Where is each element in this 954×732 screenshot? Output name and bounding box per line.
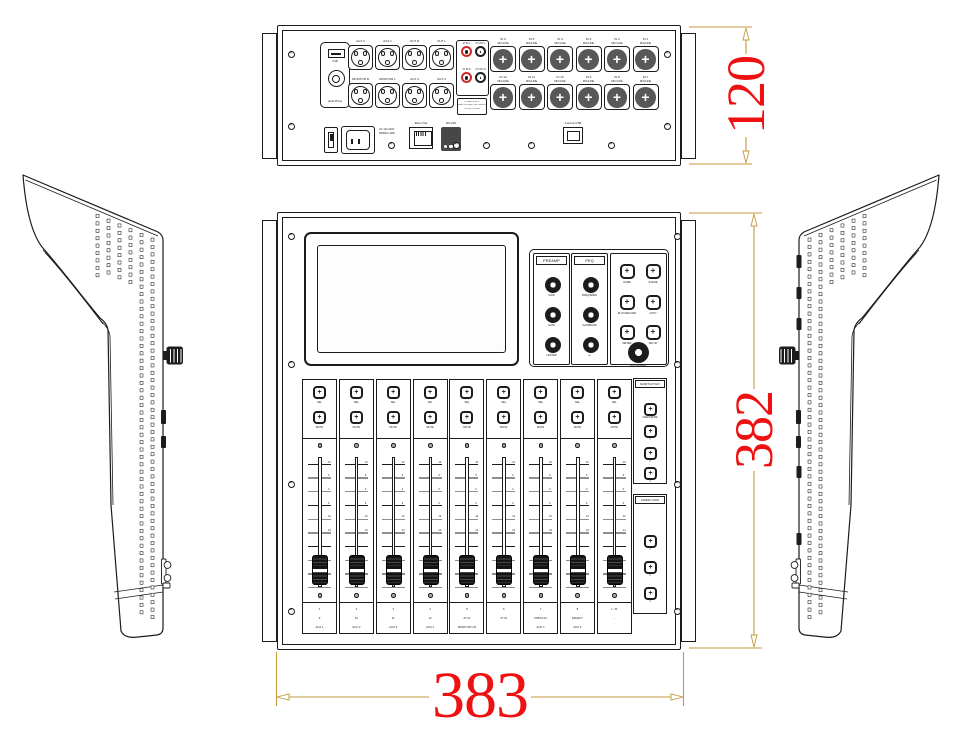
fader-scale-number: 6 [623, 503, 624, 506]
channel-strip: SELMUTE12606122452T INMONITOR L/R [449, 379, 484, 634]
peq-header: PEQ [574, 256, 605, 265]
select-button [424, 386, 437, 399]
select-button [460, 386, 473, 399]
mute-label: MUTE [414, 426, 447, 429]
xlr-combo-input: IN 8MIC/LINE [603, 76, 631, 110]
xlr-male-icon [375, 83, 400, 108]
screw-icon [608, 142, 615, 149]
select-button [497, 386, 510, 399]
side-view-right [779, 175, 939, 637]
shortcut-button-label: 1 [634, 439, 666, 442]
screw-icon [453, 142, 460, 149]
combo-jack-icon [547, 84, 573, 110]
channel-strip: SELMUTE12606122462T IN [486, 379, 521, 634]
fader-scale-number: 24 [365, 530, 368, 533]
xlr-pin [417, 89, 422, 94]
screw-icon [288, 361, 295, 368]
select-button [571, 386, 584, 399]
peq-knob-label: Q [572, 354, 607, 357]
mute-label: MUTE [487, 426, 520, 429]
tape-io-block: 2T IN L2T OUT L2T IN R2T OUT R [456, 40, 489, 96]
mute-led-icon [502, 593, 507, 598]
shortcut-button [644, 425, 657, 438]
xlr-pin [381, 89, 386, 94]
jack-label: OUT L [428, 40, 455, 44]
xlr-pin [439, 60, 444, 65]
xlr-combo-input: IN 5MIC/LINE [518, 38, 546, 72]
mute-button [350, 411, 363, 424]
fader-scale-number: 0 [475, 489, 476, 492]
channel-label-line: AUX 3 [377, 623, 410, 632]
combo-jack-icon [490, 84, 516, 110]
channel-strip: SELMUTE126061224210AUX 2 [339, 379, 374, 634]
rear-panel-view: USBHead PhoneAUX 2AUX 1OUT ROUT LMONITOR… [277, 25, 681, 166]
channel-label: 412AUX 4 [413, 602, 448, 634]
headphone-jack-icon [328, 70, 345, 87]
jack-sublabel: MIC/LINE [603, 42, 631, 45]
combo-jack-icon [576, 84, 602, 110]
fader-scale-number: 0 [586, 489, 587, 492]
mute-label: MUTE [450, 426, 483, 429]
fader-scale-number: 6 [328, 503, 329, 506]
channel-label-line: 9 [303, 614, 336, 623]
xlr-male-icon [429, 83, 454, 108]
xlr-pin [408, 51, 413, 56]
fader-cap [386, 555, 402, 585]
screw-icon [664, 51, 671, 58]
screw-icon [674, 233, 681, 240]
fader-scale-number: 12 [623, 462, 626, 465]
select-label: SEL [340, 401, 373, 404]
channel-label-line: AUX 1 [524, 623, 557, 632]
port-label: RS-232 [439, 122, 463, 126]
preamp-knob-label: GAIN [534, 294, 569, 297]
combo-jack-icon [633, 46, 659, 72]
shortcut-button-label: 3 [634, 481, 666, 484]
mute-label: MUTE [303, 426, 336, 429]
peq-knob-label: FREQ/BAND [572, 294, 607, 297]
control-usb-port: Control USB [556, 122, 590, 144]
rear-rack-ear-right [681, 33, 696, 159]
channel-label: L / R- [597, 602, 632, 634]
channel-strip: SELMUTE126061224L / R- [597, 379, 632, 634]
screw-icon [674, 481, 681, 488]
channel-label-line: 6 [487, 605, 520, 614]
fader-scale-number: 12 [512, 516, 515, 519]
fader-layer-button [644, 587, 657, 600]
xlr-combo-input: IN 4MIC/LINE [546, 38, 574, 72]
fader-scale-number: 24 [475, 530, 478, 533]
fader-scale-number: 24 [439, 530, 442, 533]
xlr-pin [363, 51, 368, 56]
select-button [534, 386, 547, 399]
mute-label: MUTE [340, 426, 373, 429]
fader-cap [533, 555, 549, 585]
signal-led-icon [318, 443, 323, 448]
fader-scale-number: 12 [586, 462, 589, 465]
fader-scale-number: 0 [623, 489, 624, 492]
xlr-combo-input: IN 10MIC/LINE [546, 76, 574, 110]
fader-scale-number: 12 [328, 516, 331, 519]
menu-button [646, 295, 661, 310]
strip-buttons: SELMUTE [377, 380, 410, 439]
xlr-pin [417, 51, 422, 56]
channel-label-line: 8 [561, 605, 594, 614]
select-button [350, 386, 363, 399]
xlr-pin [439, 98, 444, 103]
shortcut-button [644, 467, 657, 480]
select-button [313, 386, 326, 399]
xlr-pin [412, 98, 417, 103]
shortcut-button [644, 447, 657, 460]
screw-icon [674, 361, 681, 368]
preamp-knob-label: LIMITER [534, 354, 569, 357]
xlr-output: AUX 1 [374, 40, 401, 70]
fader-layer-section: FADER LAYER123 [633, 494, 667, 614]
xlr-combo-input: IN 12MIC/LINE [489, 76, 517, 110]
xlr-output: OUT L [428, 40, 455, 70]
channel-label: 8EFFECTAUX 2 [560, 602, 595, 634]
channel-label-line: - [598, 614, 631, 623]
mute-led-icon [391, 593, 396, 598]
menu-button [620, 264, 635, 279]
data-wheel-label: DATA WHEEL [618, 364, 658, 367]
fader-scale-number: 12 [439, 462, 442, 465]
fader-scale-number: 6 [549, 475, 550, 478]
xlr-output: MONITOR L [374, 78, 401, 108]
rca-connector-icon [461, 46, 472, 57]
jack-label: MONITOR R [347, 78, 374, 82]
fader-cap [349, 555, 365, 585]
preamp-knob-icon [545, 277, 561, 293]
jack-sublabel: MIC/LINE [518, 42, 546, 45]
fader-scale-number: 24 [586, 530, 589, 533]
menu-section: HOMESCENEPLAY/RECORDCOPYMETERSETUPDATA W… [610, 253, 667, 365]
xlr-male-icon [402, 45, 427, 70]
xlr-pin [390, 89, 395, 94]
fader-scale-number: 6 [512, 503, 513, 506]
jack-sublabel: MIC/LINE [489, 42, 517, 45]
front-panel-view: PREAMPGAINGATELIMITERPEQFREQ/BANDGAIN/BA… [277, 212, 681, 650]
dimension-width: 383 [432, 663, 528, 729]
side-view-left [23, 175, 183, 637]
xlr-output: OUT R [401, 40, 428, 70]
fader-scale-number: 12 [328, 462, 331, 465]
usb-b-icon [563, 127, 583, 144]
channel-label-line: 5 [450, 605, 483, 614]
channel-label: 62T IN [486, 602, 521, 634]
jack-label: AUX 4 [401, 78, 428, 82]
signal-led-icon [575, 443, 580, 448]
xlr-pin [358, 98, 363, 103]
mute-button [424, 411, 437, 424]
combo-jack-icon [490, 46, 516, 72]
channel-label-line: 4 [414, 605, 447, 614]
channel-strip: SELMUTE1260612247USB PLAYAUX 1 [523, 379, 558, 634]
peq-knob-icon [583, 337, 599, 353]
port-label: Control USB [556, 122, 590, 126]
fader-scale-number: 24 [549, 530, 552, 533]
xlr-pin [358, 60, 363, 65]
channel-label: 19AUX 1 [302, 602, 337, 634]
fader-cap [459, 555, 475, 585]
fader-scale-number: 0 [402, 489, 403, 492]
fader-scale-number: 0 [365, 489, 366, 492]
xlr-pin [354, 51, 359, 56]
jack-sublabel: MIC/LINE [632, 80, 660, 83]
fader-layer-button-label: 3 [634, 601, 666, 604]
signal-led-icon [539, 443, 544, 448]
rear-rack-ear-left [262, 33, 277, 159]
mute-led-icon [575, 593, 580, 598]
shortcut-key-header: SHORTCUT KEY [635, 380, 665, 388]
fader-cap [607, 555, 623, 585]
fader-layer-button-label: 2 [634, 575, 666, 578]
xlr-combo-input: IN 9MIC/LINE [575, 76, 603, 110]
combo-jack-icon [576, 46, 602, 72]
fader-cap [570, 555, 586, 585]
peq-knob-icon [583, 307, 599, 323]
peq-knob-label: GAIN/BAND [572, 324, 607, 327]
strip-buttons: SELMUTE [414, 380, 447, 439]
fader-cap [423, 555, 439, 585]
signal-led-icon [391, 443, 396, 448]
signal-led-icon [428, 443, 433, 448]
fader-scale-number: 12 [512, 462, 515, 465]
screw-icon [288, 51, 295, 58]
warning-line: DO NOT OPEN [458, 108, 486, 112]
channel-label-line: AUX 1 [303, 623, 336, 632]
xlr-pin [444, 89, 449, 94]
data-wheel-icon [628, 342, 649, 363]
channel-strip: SELMUTE126061224412AUX 4 [413, 379, 448, 634]
channel-strip: SELMUTE126061224311AUX 3 [376, 379, 411, 634]
channel-strip: SELMUTE12606122419AUX 1 [302, 379, 337, 634]
fader-scale-number: 12 [402, 516, 405, 519]
xlr-pin [385, 60, 390, 65]
xlr-combo-input: IN 3MIC/LINE [575, 38, 603, 72]
mute-button [534, 411, 547, 424]
xlr-combo-input: IN 1MIC/LINE [632, 38, 660, 72]
select-label: SEL [303, 401, 336, 404]
channel-label-line: 12 [414, 614, 447, 623]
combo-jack-icon [547, 46, 573, 72]
channel-label-line: 3 [377, 605, 410, 614]
fader-cap [312, 555, 328, 585]
fader-scale-number: 12 [549, 462, 552, 465]
strip-buttons: SELMUTE [487, 380, 520, 439]
usb-port-icon [328, 49, 345, 58]
signal-led-icon [612, 443, 617, 448]
xlr-output: AUX 4 [401, 78, 428, 108]
fader-scale-number: 0 [439, 489, 440, 492]
fader-scale-number: 12 [623, 516, 626, 519]
screw-icon [528, 142, 535, 149]
signal-led-icon [465, 443, 470, 448]
fader-scale-number: 6 [475, 503, 476, 506]
xlr-male-icon [375, 45, 400, 70]
fader-scale-number: 24 [512, 530, 515, 533]
select-label: SEL [598, 401, 631, 404]
xlr-pin [408, 89, 413, 94]
power-spec-line: 50/60Hz 40W [379, 132, 407, 136]
channel-label-line: AUX 2 [340, 623, 373, 632]
jack-sublabel: MIC/LINE [632, 42, 660, 45]
menu-button [646, 264, 661, 279]
xlr-combo-input: IN 7MIC/LINE [632, 76, 660, 110]
jack-label: AUX 3 [428, 78, 455, 82]
shortcut-button [644, 403, 657, 416]
xlr-pin [390, 51, 395, 56]
headphone-label: Head Phone [321, 100, 349, 103]
channel-label-line: EFFECT [561, 614, 594, 623]
fader-scale-number: 12 [475, 516, 478, 519]
screw-icon [674, 608, 681, 615]
screw-icon [288, 123, 295, 130]
jack-label: AUX 1 [374, 40, 401, 44]
fader-scale-number: 12 [549, 516, 552, 519]
xlr-pin [385, 98, 390, 103]
channel-label: 52T INMONITOR L/R [449, 602, 484, 634]
power-switch-icon [324, 127, 338, 153]
select-label: SEL [377, 401, 410, 404]
xlr-combo-input: IN 11MIC/LINE [518, 76, 546, 110]
fader-scale-number: 6 [512, 475, 513, 478]
xlr-combo-input: IN 2MIC/LINE [603, 38, 631, 72]
select-button [387, 386, 400, 399]
fader-scale-number: 6 [475, 475, 476, 478]
channel-label-line: 11 [377, 614, 410, 623]
fader-scale-number: 6 [586, 475, 587, 478]
fader-scale-number: 24 [402, 530, 405, 533]
jack-sublabel: MIC/LINE [575, 42, 603, 45]
touchscreen-bezel [304, 232, 519, 366]
fader-scale-number: 6 [549, 503, 550, 506]
select-label: SEL [450, 401, 483, 404]
screw-icon [288, 481, 295, 488]
mute-led-icon [539, 593, 544, 598]
usb-label: USB [321, 60, 349, 63]
fader-scale-number: 12 [439, 516, 442, 519]
mute-led-icon [354, 593, 359, 598]
mute-button [608, 411, 621, 424]
menu-button-label: SCENE [639, 281, 667, 284]
fader-scale-number: 12 [402, 462, 405, 465]
channel-label-line: USB PLAY [524, 614, 557, 623]
select-label: SEL [561, 401, 594, 404]
fader-scale-number: 6 [365, 503, 366, 506]
fader-scale-number: 0 [328, 489, 329, 492]
fader-scale-number: 12 [475, 462, 478, 465]
xlr-male-icon [402, 83, 427, 108]
fader-scale-number: 6 [328, 475, 329, 478]
jack-sublabel: MIC/LINE [518, 80, 546, 83]
power-spec: AC 110-240V50/60Hz 40W [379, 128, 407, 136]
screw-icon [288, 608, 295, 615]
channel-label-line: AUX 4 [414, 623, 447, 632]
dimension-front-height: 382 [727, 391, 781, 469]
combo-jack-icon [519, 46, 545, 72]
jack-sublabel: MIC/LINE [489, 80, 517, 83]
terminal-pin [444, 145, 447, 148]
peq-knob-icon [583, 277, 599, 293]
preamp-header: PREAMP [536, 256, 567, 265]
select-label: SEL [487, 401, 520, 404]
xlr-male-icon [348, 45, 373, 70]
signal-led-icon [354, 443, 359, 448]
fader-scale-number: 24 [623, 530, 626, 533]
xlr-pin [444, 51, 449, 56]
combo-jack-icon [633, 84, 659, 110]
fader-scale-number: 24 [328, 530, 331, 533]
strip-buttons: SELMUTE [340, 380, 373, 439]
shortcut-button-label: USER DEFINE [634, 417, 666, 420]
combo-jack-icon [519, 84, 545, 110]
fader-cap [496, 555, 512, 585]
fader-layer-button-label: 1 [634, 549, 666, 552]
xlr-output: AUX 2 [347, 40, 374, 70]
xlr-combo-input: IN 6MIC/LINE [489, 38, 517, 72]
screw-icon [664, 123, 671, 130]
xlr-output: MONITOR R [347, 78, 374, 108]
mute-label: MUTE [561, 426, 594, 429]
rca-connector-icon [461, 72, 472, 83]
jack-connector-icon [475, 46, 486, 57]
fader-scale-number: 0 [549, 489, 550, 492]
mute-button [571, 411, 584, 424]
jack-label: AUX 2 [347, 40, 374, 44]
xlr-pin [381, 51, 386, 56]
xlr-male-icon [429, 45, 454, 70]
fader-scale-number: 6 [402, 475, 403, 478]
menu-button-label: COPY [639, 312, 667, 315]
fader-scale-number: 12 [365, 516, 368, 519]
select-button [608, 386, 621, 399]
channel-label-line: 2 [340, 605, 373, 614]
strip-buttons: SELMUTE [450, 380, 483, 439]
fader-layer-button [644, 535, 657, 548]
channel-label-line: 7 [524, 605, 557, 614]
xlr-pin [435, 89, 440, 94]
fader-scale-number: 6 [439, 475, 440, 478]
mute-led-icon [612, 593, 617, 598]
fader-scale-number: 6 [365, 475, 366, 478]
xlr-pin [435, 51, 440, 56]
preamp-knob-label: GATE [534, 324, 569, 327]
tape-cell: 2T IN R [460, 69, 473, 83]
master-control-cluster: PREAMPGAINGATELIMITERPEQFREQ/BANDGAIN/BA… [529, 249, 669, 367]
channel-label-line: MONITOR L/R [450, 623, 483, 632]
mute-button [460, 411, 473, 424]
touchscreen [317, 245, 506, 353]
screw-icon [288, 233, 295, 240]
channel-label-line: 10 [340, 614, 373, 623]
screw-icon [483, 142, 490, 149]
usb-phone-plate: USBHead Phone [320, 42, 350, 108]
channel-strip: SELMUTE1260612248EFFECTAUX 2 [560, 379, 595, 634]
fader-scale-number: 6 [402, 503, 403, 506]
preamp-knob-icon [545, 307, 561, 323]
channel-label-line: AUX 2 [561, 623, 594, 632]
channel-label: 210AUX 2 [339, 602, 374, 634]
jack-sublabel: MIC/LINE [603, 80, 631, 83]
port-label: Ether Net [406, 122, 436, 126]
fader-scale-number: 12 [586, 516, 589, 519]
tape-cell: 2T OUT R [474, 69, 487, 83]
strip-buttons: SELMUTE [561, 380, 594, 439]
dimension-rear-height: 120 [719, 56, 773, 134]
mute-button [387, 411, 400, 424]
